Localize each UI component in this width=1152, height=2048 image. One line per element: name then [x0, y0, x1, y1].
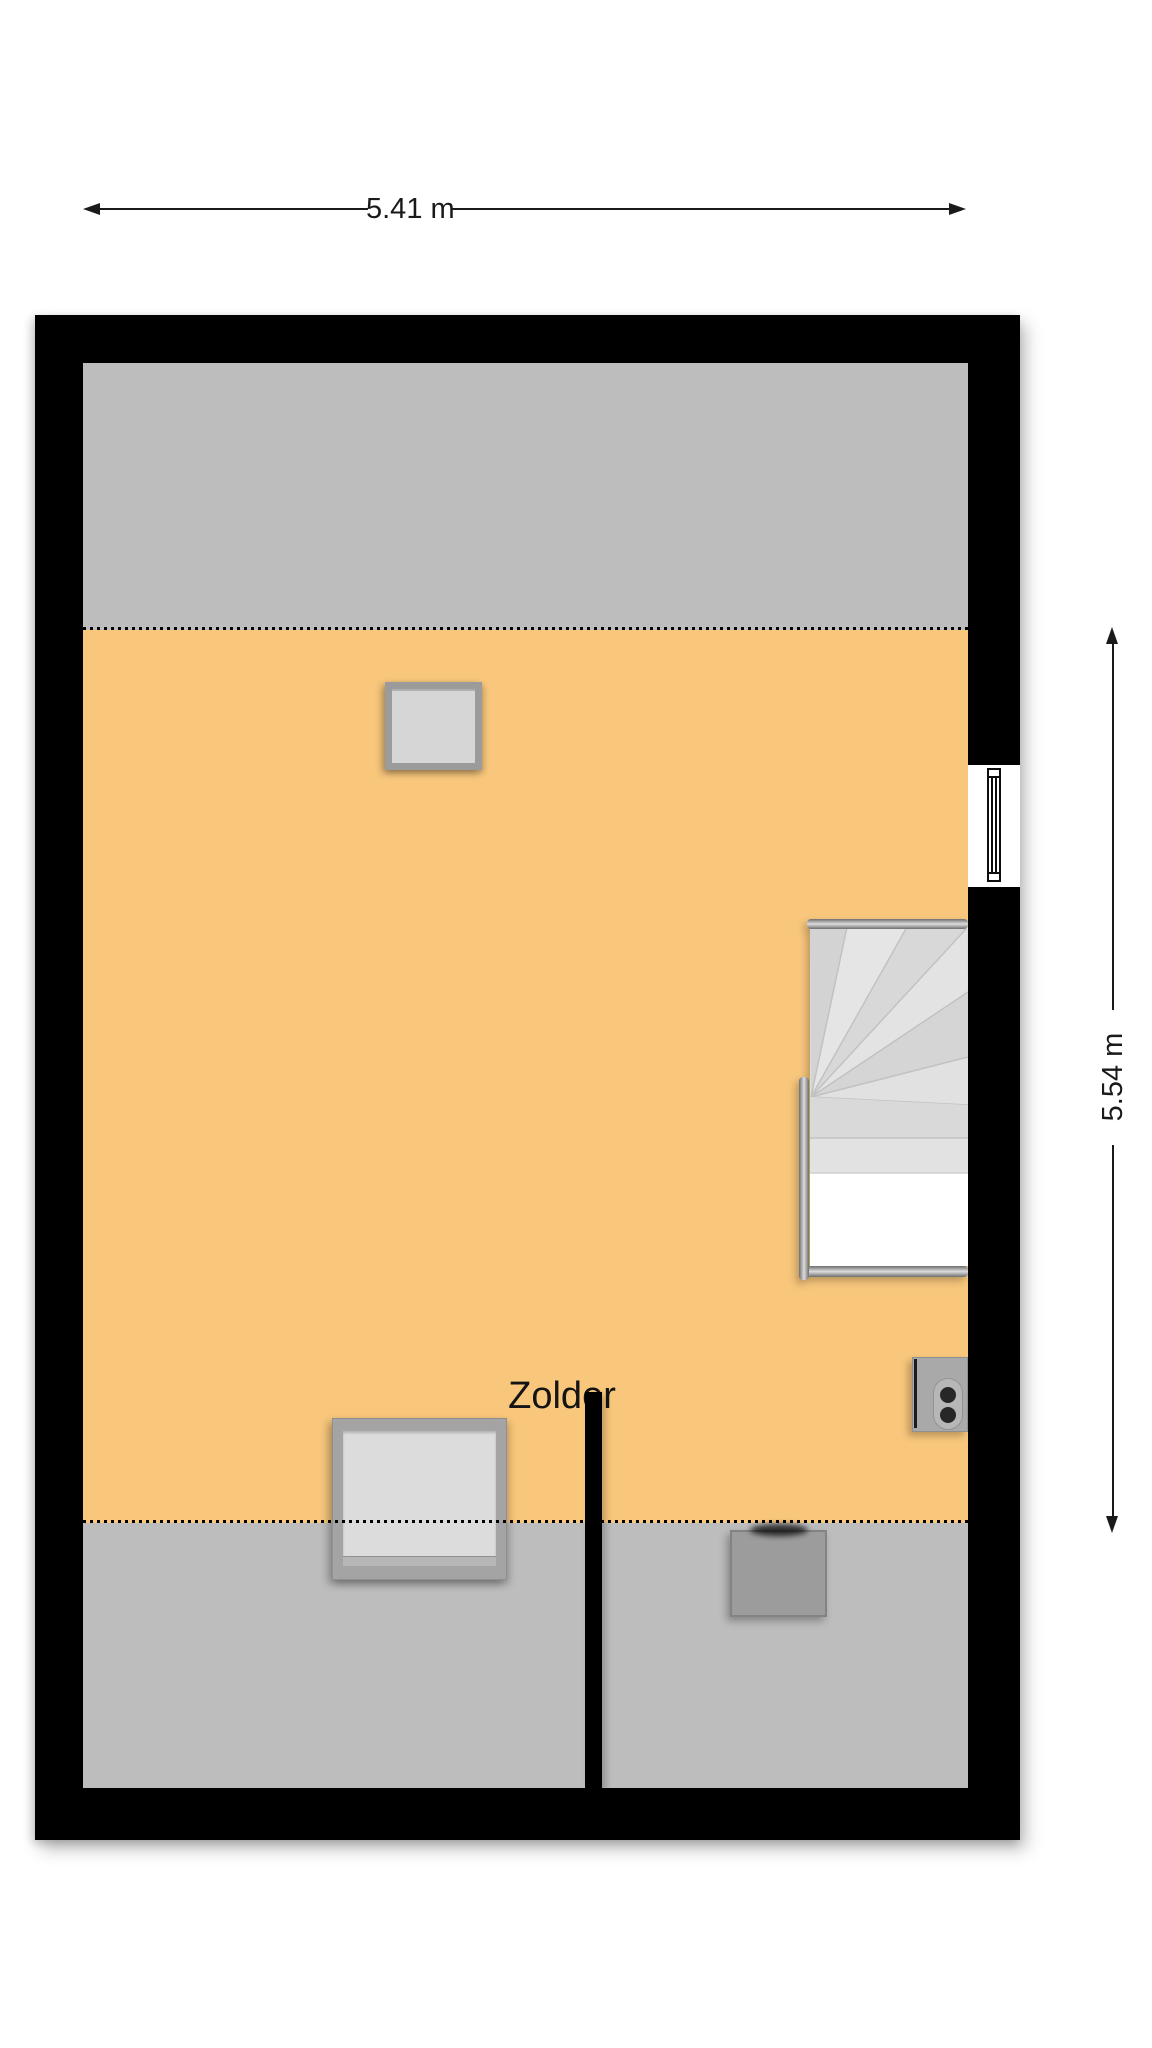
dimension-height-label: 5.54 m — [1092, 1017, 1134, 1137]
headroom-line-bottom — [83, 1520, 968, 1523]
right-wall-window-icon — [968, 765, 1020, 887]
ventilation-unit-dot — [940, 1387, 956, 1403]
low-headroom-zone-bottom — [83, 1523, 968, 1788]
ventilation-unit-icon — [912, 1357, 968, 1432]
chimney-shadow — [750, 1524, 808, 1536]
ventilation-unit-line — [914, 1359, 917, 1428]
window-frame — [987, 768, 1001, 882]
roof-window-top-icon — [385, 682, 482, 770]
stair-handrail-bottom — [807, 1266, 968, 1277]
roof-window-sill — [343, 1556, 496, 1566]
window-cap — [989, 770, 999, 778]
window-cap — [989, 872, 999, 880]
window-glass — [991, 778, 997, 872]
low-headroom-zone-top — [83, 363, 968, 630]
roof-window-glass — [343, 1431, 496, 1566]
room-label: Zolder — [462, 1375, 662, 1417]
arrow-up-icon — [1106, 627, 1118, 644]
dimension-line — [452, 208, 949, 210]
dimension-line — [1112, 643, 1114, 1010]
stair-handrail-top — [807, 919, 968, 929]
partition-wall — [585, 1392, 602, 1788]
arrow-down-icon — [1106, 1516, 1118, 1533]
dimension-line — [1112, 1145, 1114, 1516]
stair-handrail-left — [799, 1077, 809, 1280]
floorplan-canvas: 5.41 m 5.54 m Zolder — [0, 0, 1152, 2048]
dimension-width-label: 5.41 m — [366, 188, 454, 230]
winder-staircase-icon — [799, 919, 968, 1280]
ventilation-unit-dot — [940, 1407, 956, 1423]
building-outline: Zolder — [35, 315, 1020, 1840]
arrow-right-icon — [949, 203, 966, 215]
roof-window-glass — [392, 689, 475, 763]
arrow-left-icon — [83, 203, 100, 215]
headroom-line-top — [83, 627, 968, 630]
chimney-duct-icon — [730, 1530, 827, 1617]
dimension-line — [99, 208, 368, 210]
roof-window-bottom-icon — [332, 1418, 507, 1580]
